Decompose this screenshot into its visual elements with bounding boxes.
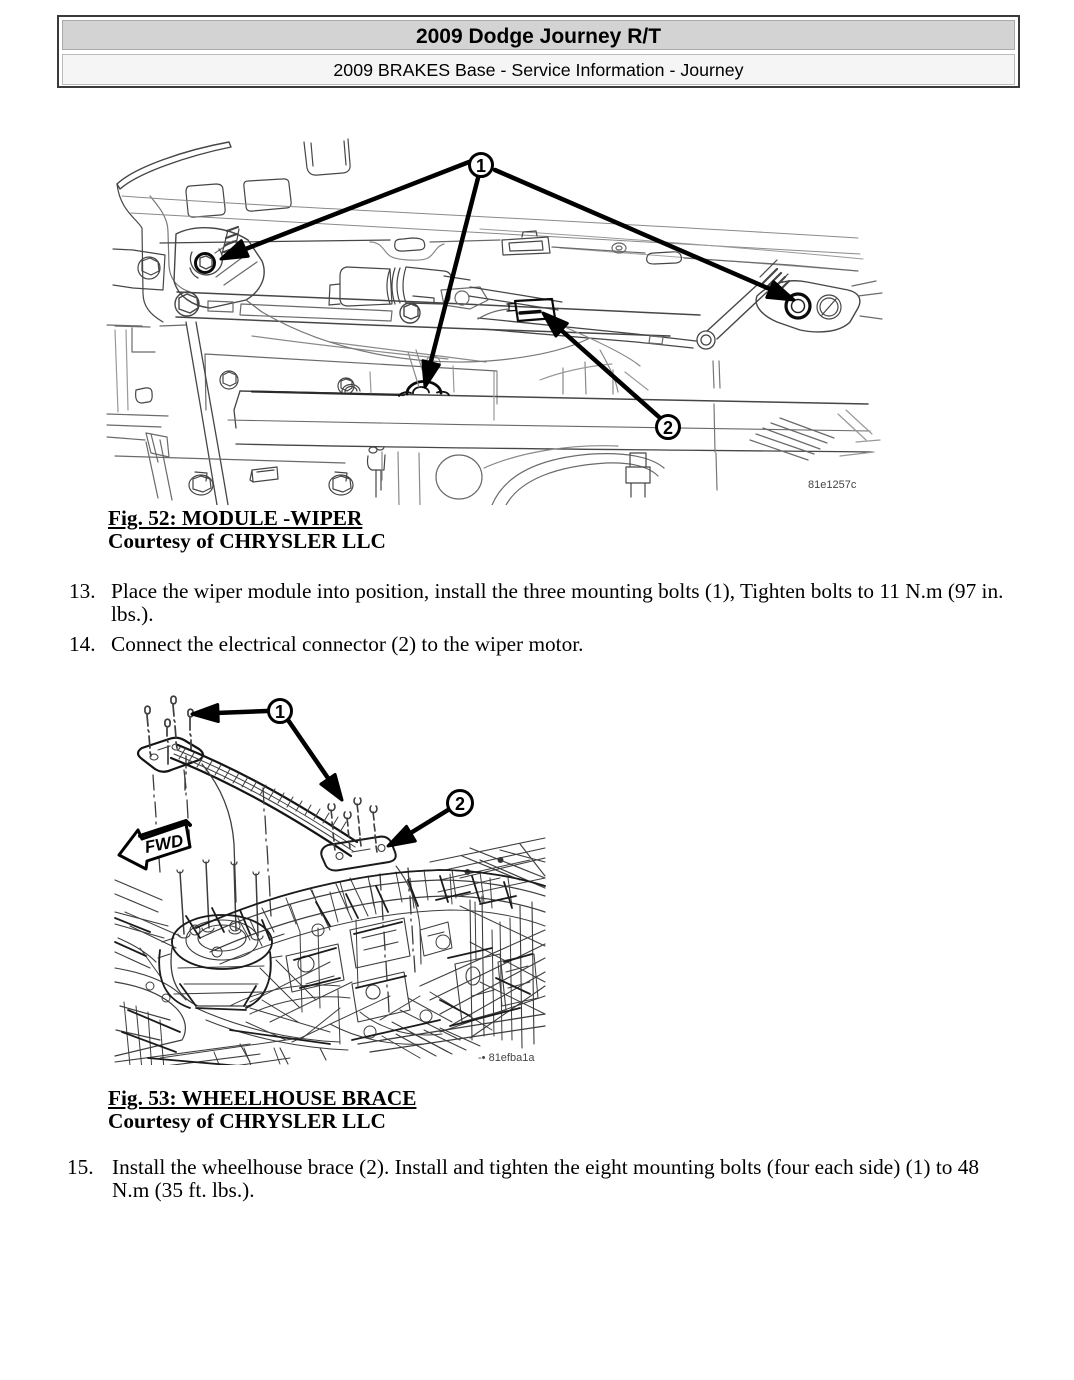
svg-text:81e1257c: 81e1257c: [808, 479, 857, 491]
svg-text:2: 2: [663, 418, 673, 438]
svg-text:1: 1: [476, 156, 486, 176]
svg-text:1: 1: [275, 702, 285, 722]
svg-text:2: 2: [455, 794, 465, 814]
svg-text:-• 81efba1a: -• 81efba1a: [478, 1052, 535, 1064]
